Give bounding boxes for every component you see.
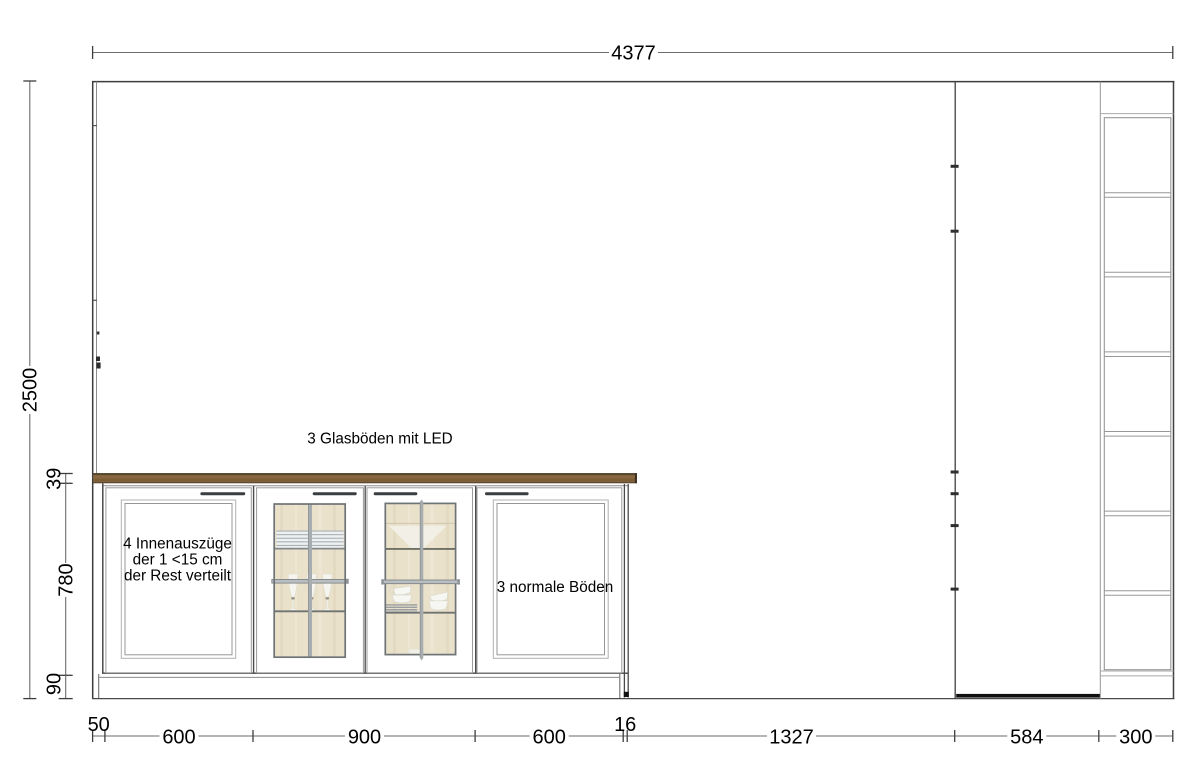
svg-text:2500: 2500 [20, 368, 42, 413]
svg-text:3 normale Böden: 3 normale Böden [497, 579, 614, 596]
svg-text:der Rest verteilt: der Rest verteilt [124, 567, 232, 584]
svg-text:584: 584 [1010, 726, 1043, 748]
svg-text:600: 600 [162, 726, 195, 748]
svg-text:780: 780 [55, 563, 77, 596]
svg-text:90: 90 [44, 673, 66, 695]
svg-text:1327: 1327 [769, 726, 814, 748]
svg-text:16: 16 [614, 714, 636, 736]
svg-text:3 Glasböden mit LED: 3 Glasböden mit LED [307, 431, 452, 448]
svg-text:der 1 <15 cm: der 1 <15 cm [133, 552, 223, 569]
svg-text:50: 50 [88, 714, 110, 736]
svg-text:4 Innenauszüge: 4 Innenauszüge [123, 535, 232, 552]
svg-text:300: 300 [1119, 726, 1152, 748]
svg-text:4377: 4377 [611, 42, 656, 64]
svg-text:900: 900 [348, 726, 381, 748]
svg-text:600: 600 [533, 726, 566, 748]
svg-text:39: 39 [43, 468, 65, 490]
